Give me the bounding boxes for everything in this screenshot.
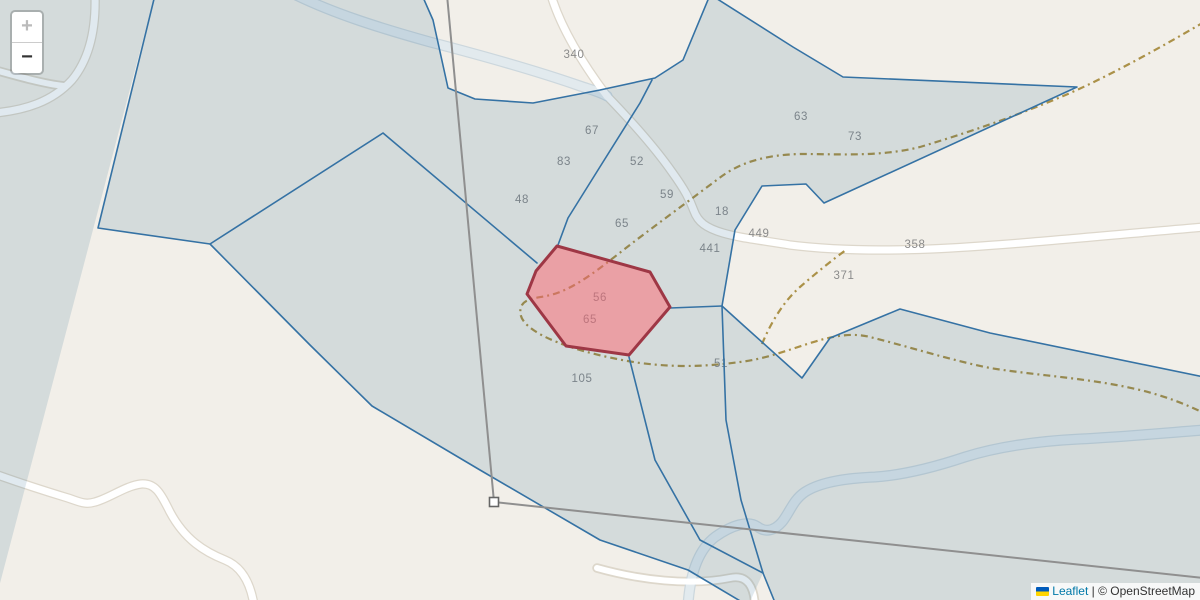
tile-label-449: 449 [749, 228, 770, 240]
zoom-in-button[interactable]: + [12, 12, 42, 43]
map-canvas[interactable]: 3406783524859651844144935837163735665105… [0, 0, 1200, 600]
ukraine-flag-icon [1036, 587, 1049, 596]
tile-label-371: 371 [834, 270, 855, 282]
measurement-vertex-handle[interactable] [490, 498, 499, 507]
zoom-out-button[interactable]: − [12, 43, 42, 73]
openstreetmap-link[interactable]: © OpenStreetMap [1098, 584, 1195, 598]
tile-label-340: 340 [564, 49, 585, 61]
leaflet-link[interactable]: Leaflet [1052, 584, 1088, 598]
tile-label-358: 358 [905, 239, 926, 251]
attribution-bar: Leaflet | © OpenStreetMap [1031, 583, 1200, 600]
attribution-separator: | [1088, 584, 1098, 598]
leaflet-map[interactable]: 3406783524859651844144935837163735665105… [0, 0, 1200, 600]
zoom-control: + − [10, 10, 44, 75]
